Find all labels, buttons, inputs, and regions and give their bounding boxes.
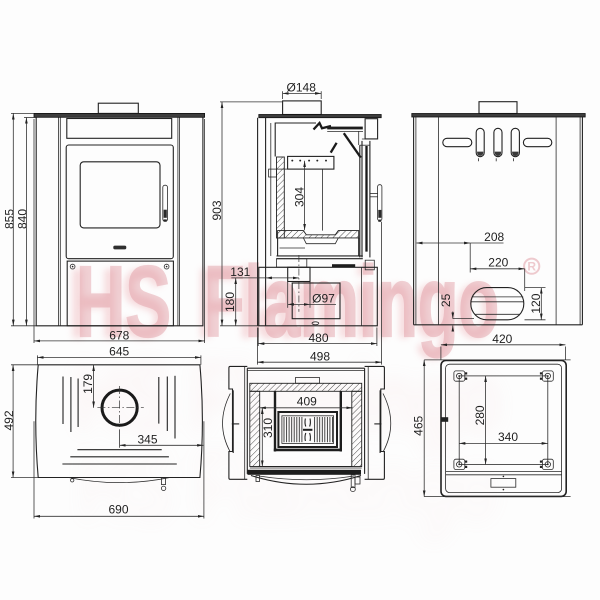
svg-text:855: 855 <box>2 209 16 229</box>
svg-text:690: 690 <box>108 503 128 517</box>
svg-text:840: 840 <box>16 209 30 229</box>
svg-text:678: 678 <box>109 328 129 342</box>
svg-text:180: 180 <box>223 292 237 312</box>
svg-text:465: 465 <box>411 415 425 435</box>
svg-text:420: 420 <box>492 332 512 346</box>
svg-text:310: 310 <box>261 418 275 438</box>
svg-text:131: 131 <box>230 265 250 279</box>
svg-text:179: 179 <box>81 374 95 394</box>
svg-text:Ø97: Ø97 <box>312 292 335 306</box>
svg-text:220: 220 <box>488 256 508 270</box>
svg-text:645: 645 <box>109 344 129 358</box>
svg-text:Ø148: Ø148 <box>287 81 317 95</box>
svg-text:480: 480 <box>308 331 328 345</box>
svg-text:498: 498 <box>310 350 330 364</box>
svg-text:345: 345 <box>137 433 157 447</box>
svg-text:Flamingo: Flamingo <box>204 246 499 358</box>
svg-text:120: 120 <box>529 293 543 313</box>
svg-text:208: 208 <box>484 230 504 244</box>
svg-text:R: R <box>527 260 536 274</box>
svg-text:903: 903 <box>210 200 224 220</box>
svg-text:304: 304 <box>293 187 307 207</box>
svg-text:25: 25 <box>439 293 453 307</box>
svg-text:492: 492 <box>2 410 16 430</box>
svg-text:409: 409 <box>297 395 317 409</box>
svg-text:340: 340 <box>498 430 518 444</box>
svg-text:280: 280 <box>473 405 487 425</box>
